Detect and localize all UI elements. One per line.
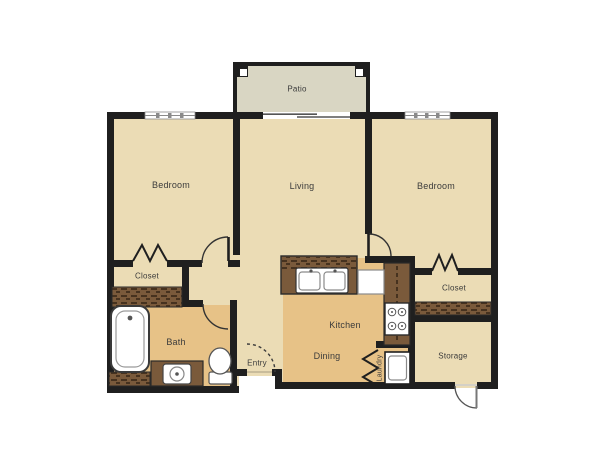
bath-cabinet bbox=[109, 372, 150, 386]
wall-bottom-right bbox=[276, 382, 455, 389]
closetL-shelf bbox=[112, 287, 182, 307]
wall-closetR-top-2 bbox=[458, 268, 498, 275]
wall-bedroomL-bottom-1 bbox=[107, 260, 133, 267]
room-label-bath: Bath bbox=[166, 337, 185, 347]
wall-top-4 bbox=[450, 112, 498, 119]
exterior-notch bbox=[239, 376, 275, 393]
wall-bedroomL-bottom-3 bbox=[228, 260, 240, 267]
stove bbox=[385, 303, 409, 335]
wall-bedroomL-living bbox=[233, 112, 240, 255]
wall-closetR-storage bbox=[408, 315, 498, 322]
wall-bedroomR-left bbox=[365, 112, 372, 234]
washer bbox=[385, 352, 410, 384]
room-label-bedroom-right: Bedroom bbox=[417, 181, 455, 191]
sliding-patio-door bbox=[263, 112, 350, 119]
wall-top-3 bbox=[350, 112, 405, 119]
vanity-sink bbox=[163, 364, 191, 384]
wall-entry-stub-left bbox=[237, 369, 247, 376]
room-label-laundry: Laundry bbox=[377, 355, 384, 382]
wall-top-1 bbox=[107, 112, 145, 119]
toilet bbox=[209, 348, 232, 384]
floor-plan-drawing bbox=[0, 0, 600, 450]
storage-door-arc bbox=[455, 385, 477, 408]
room-label-closet-right: Closet bbox=[442, 284, 466, 293]
patio-post-right-inset bbox=[356, 69, 363, 76]
patio-wall-top bbox=[233, 62, 370, 66]
window-bedroom-right bbox=[405, 112, 450, 119]
refrigerator bbox=[358, 270, 384, 294]
room-label-kitchen: Kitchen bbox=[329, 320, 360, 330]
patio-post-left-inset bbox=[240, 69, 247, 76]
room-label-bedroom-left: Bedroom bbox=[152, 180, 190, 190]
room-label-dining: Dining bbox=[314, 351, 341, 361]
room-label-living: Living bbox=[290, 181, 315, 191]
double-kitchen-sink bbox=[296, 268, 348, 293]
room-label-entry: Entry bbox=[247, 359, 267, 368]
wall-closetL-right bbox=[182, 260, 189, 307]
wall-bedroomR-bottom bbox=[365, 256, 415, 263]
room-label-patio: Patio bbox=[287, 85, 306, 94]
bathtub bbox=[111, 306, 149, 372]
wall-top-2 bbox=[195, 112, 263, 119]
closetR-shelf bbox=[415, 302, 491, 315]
wall-bottom-end bbox=[477, 382, 498, 389]
window-bedroom-left bbox=[145, 112, 195, 119]
room-label-storage: Storage bbox=[438, 352, 467, 361]
floor-plan-image: Patio Bedroom Living Bedroom Closet Clos… bbox=[0, 0, 600, 450]
wall-closetR-top-1 bbox=[415, 268, 432, 275]
room-label-closet-left: Closet bbox=[135, 272, 159, 281]
wall-exterior-right bbox=[491, 112, 498, 389]
kitchen-counter-hatch bbox=[282, 257, 356, 269]
wall-bottom-left bbox=[107, 386, 239, 393]
